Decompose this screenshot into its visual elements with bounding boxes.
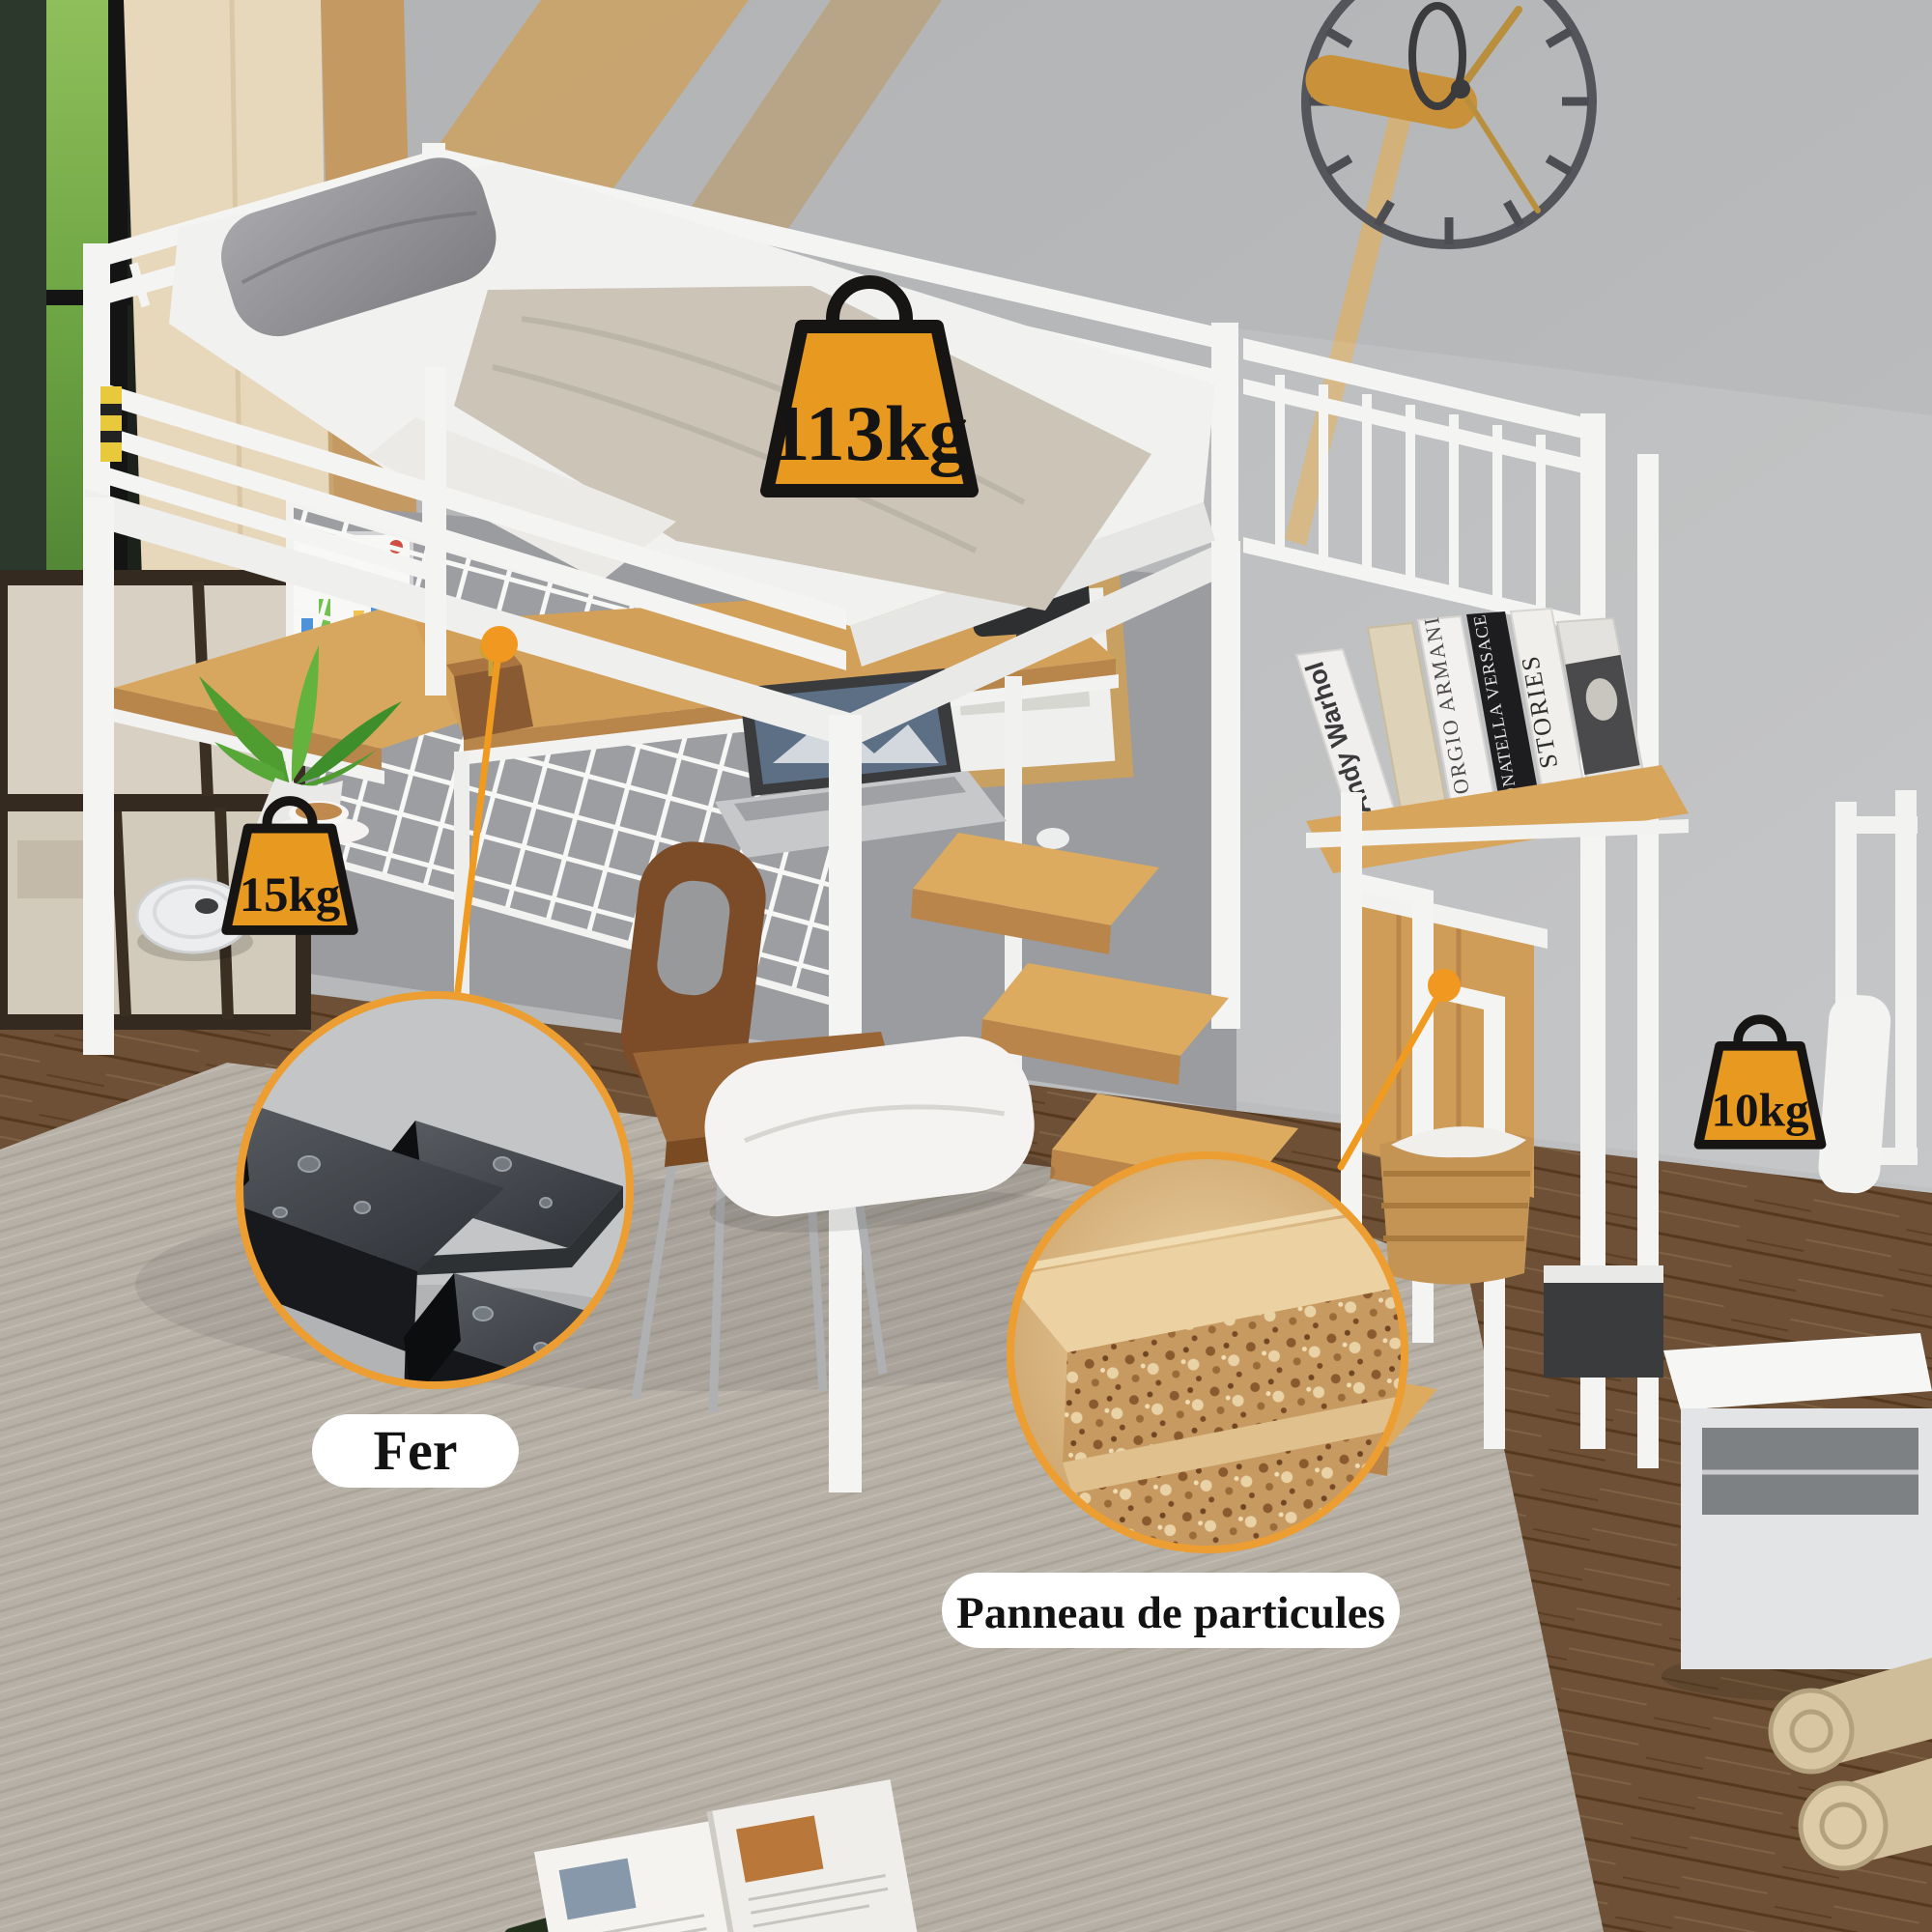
material-label-board: Panneau de particules — [956, 1588, 1385, 1638]
scene-canvas: Andy Warhol GIORGIO ARMANI DONATELLA VER… — [0, 0, 1932, 1932]
weight-badge-total-label: 113kg — [770, 389, 968, 477]
post-sticker — [100, 386, 122, 462]
leg-front-left — [83, 497, 114, 1055]
label-pill-metal: Fer — [312, 1414, 519, 1488]
front-mid-post — [425, 367, 446, 696]
label-pill-board: Panneau de particules — [942, 1573, 1400, 1648]
clock-center-cap — [1451, 79, 1470, 99]
storage-box — [1544, 1265, 1663, 1378]
material-label-metal: Fer — [374, 1419, 458, 1482]
weight-badge-shelf-label: 10kg — [1711, 1084, 1809, 1137]
leg-right — [1211, 541, 1240, 1029]
wicker-basket — [1379, 1126, 1534, 1284]
marker-dot-metal — [481, 626, 518, 663]
mouse — [1037, 828, 1069, 849]
product-photo-loft-bed: Andy Warhol GIORGIO ARMANI DONATELLA VER… — [0, 0, 1932, 1932]
nightstand — [1662, 1333, 1932, 1701]
marker-dot-board — [1428, 969, 1461, 1002]
weight-badge-desk-label: 15kg — [240, 867, 341, 922]
storage-crates — [0, 578, 303, 1022]
